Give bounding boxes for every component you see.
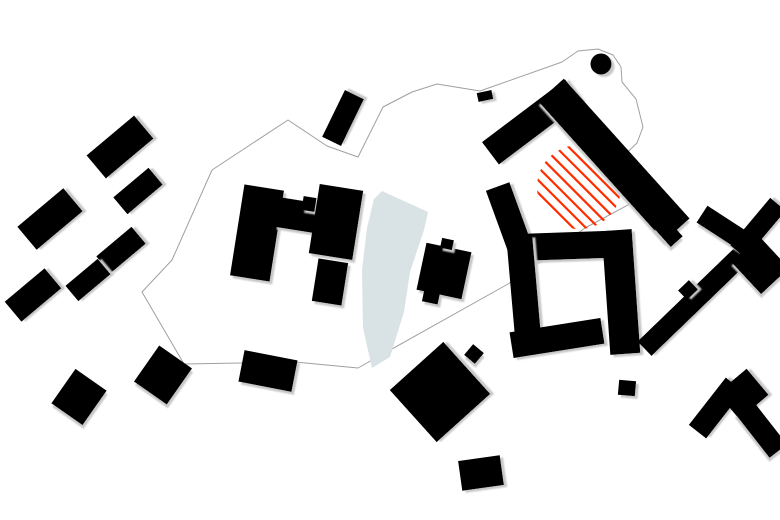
hatch-line [536, 165, 601, 230]
building-footprint [301, 196, 316, 212]
building-footprint [309, 184, 363, 260]
building-footprint [322, 90, 364, 146]
pond [362, 191, 428, 368]
hatch-line [529, 171, 594, 236]
site-plan-svg [0, 0, 780, 520]
building-footprint [5, 268, 62, 321]
building-footprint [51, 369, 106, 425]
circular-building [591, 54, 612, 75]
hatch-line [542, 159, 607, 224]
building-footprint [134, 346, 192, 405]
building-footprint [238, 350, 297, 392]
building-footprint [464, 344, 484, 364]
building-footprint [17, 188, 82, 250]
building-footprint [735, 400, 780, 458]
building-footprint [458, 455, 504, 491]
building-footprint [618, 380, 636, 396]
building-footprint [602, 229, 641, 355]
pond-layer [362, 191, 428, 368]
building-footprint [230, 184, 284, 281]
building-footprint [477, 90, 494, 102]
building-footprint [312, 258, 348, 305]
building-footprint [113, 168, 162, 214]
building-footprint [87, 116, 154, 179]
site-plan [0, 0, 780, 520]
